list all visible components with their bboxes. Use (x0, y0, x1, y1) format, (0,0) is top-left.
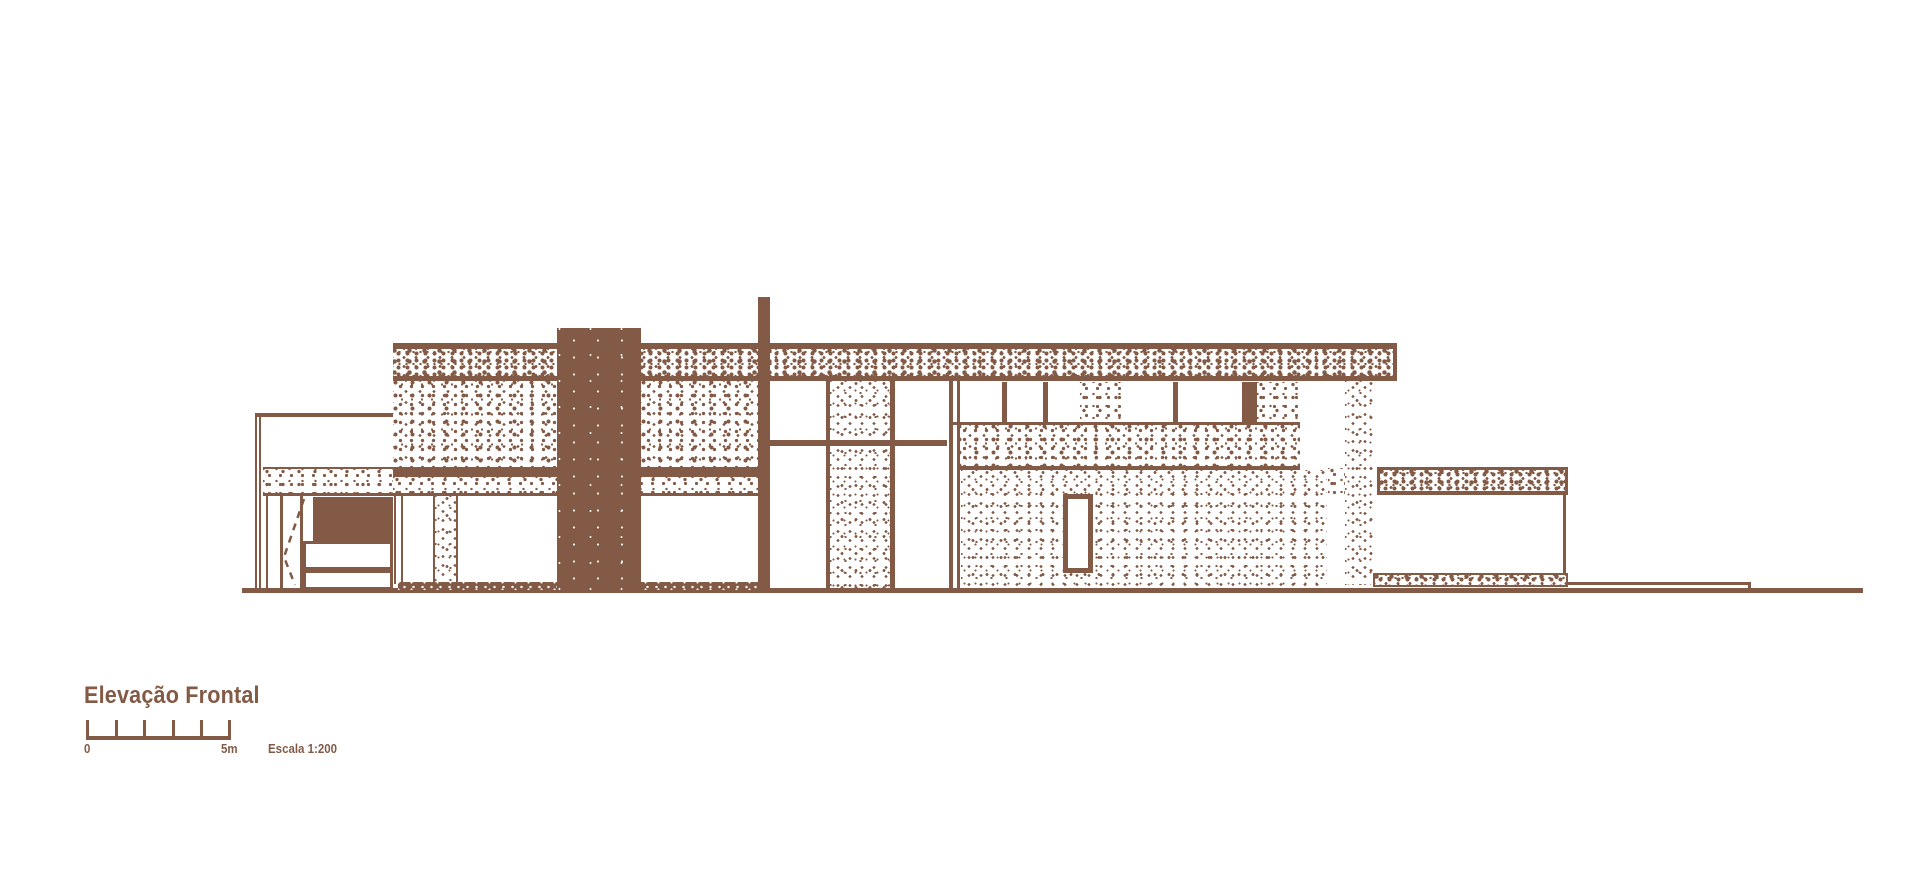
entry-recess (313, 497, 393, 541)
scale-start-label: 0 (84, 742, 90, 756)
ground-floor-jamb-2 (401, 496, 403, 584)
pier-mullion-right (890, 381, 895, 588)
clerestory-mullion-1 (1002, 382, 1007, 422)
scale-bar-tick (115, 720, 118, 736)
scale-bar-tick (86, 720, 89, 736)
block-edge-line-2 (957, 381, 960, 588)
terrace-edge-step (1748, 582, 1751, 591)
scale-bar-tick (228, 720, 231, 736)
mast (758, 297, 770, 590)
scale-bar-tick (200, 720, 203, 736)
clerestory-mullion-3 (1173, 382, 1178, 422)
spandrel-band (957, 425, 1300, 467)
carport-pier (1345, 381, 1373, 585)
lower-stone-wall (961, 470, 1327, 588)
entry-step-lower (303, 570, 393, 590)
scale-note-label: Escala 1:200 (268, 742, 337, 756)
stone-pier (830, 381, 890, 588)
clerestory-pier-2 (1257, 382, 1300, 422)
scale-bar-tick (143, 720, 146, 736)
ground-floor-column (433, 496, 458, 585)
upper-wall-left (393, 381, 557, 467)
scale-bar-tick (172, 720, 175, 736)
terrace-edge-line (1568, 582, 1750, 585)
ground-floor-jamb-1 (394, 496, 396, 584)
clerestory-mullion-2 (1043, 382, 1048, 422)
carport-slab-bridge (1328, 468, 1345, 495)
wing-roof-line (255, 413, 393, 417)
wing-wall-line-3 (266, 496, 268, 588)
scale-end-label: 5m (221, 742, 238, 756)
upper-wall-center (641, 381, 758, 467)
roof-slab-band (393, 343, 1397, 381)
bench-plinth (1373, 573, 1568, 587)
carport-post-line (1563, 495, 1566, 574)
wing-wall-line-inner (259, 413, 261, 588)
entry-step-upper (303, 541, 393, 570)
wing-wall-line-outer (255, 413, 257, 588)
drawing-title: Elevação Frontal (84, 682, 260, 710)
block-edge-line-1 (949, 381, 953, 588)
chimney (557, 328, 641, 593)
scale-bar-line (86, 736, 231, 740)
clerestory-pier-1 (1080, 382, 1123, 422)
lower-wall-window (1063, 494, 1093, 573)
elevation-sheet: Elevação Frontal 0 5m Escala 1:200 (0, 0, 1920, 880)
wing-slab-band (263, 467, 393, 493)
carport-slab (1377, 467, 1568, 495)
clerestory-mullion-4 (1242, 382, 1257, 422)
